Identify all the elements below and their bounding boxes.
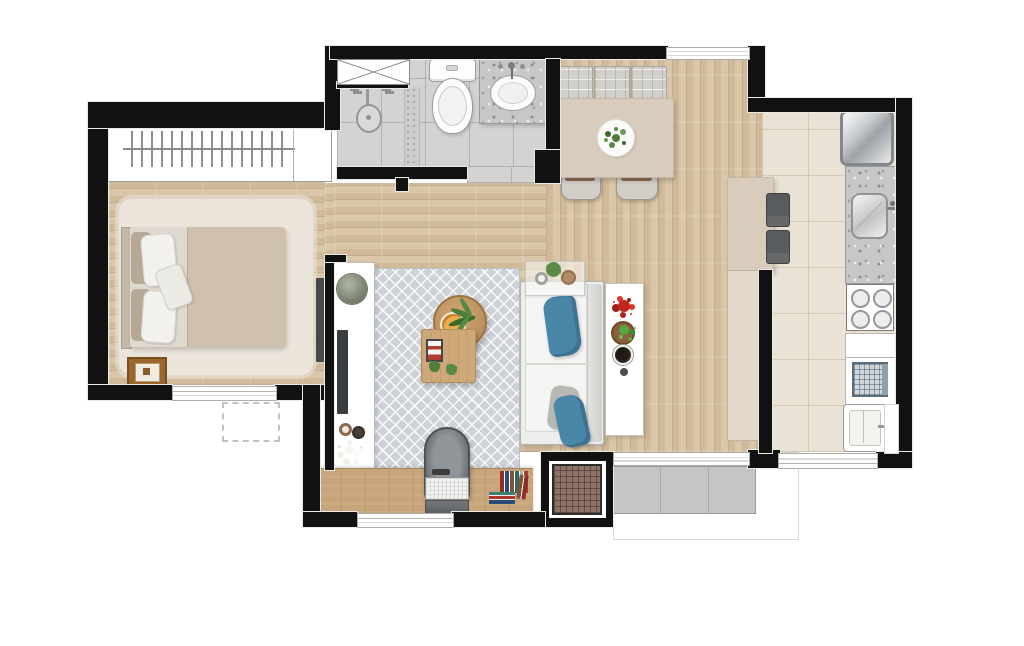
console-cup-2: [352, 426, 365, 439]
vanity: [479, 58, 547, 124]
kitchen-sink: [851, 193, 888, 239]
dining-cushion-1: [557, 66, 593, 101]
shower-head: [356, 104, 382, 133]
red-flowers: [618, 300, 630, 312]
vanity-handle-right: [520, 64, 525, 69]
kitchen-counter-white: [845, 333, 897, 359]
floor-plan: [0, 0, 1024, 646]
kitchen-sink-lines: [857, 199, 882, 233]
vanity-faucet-stem: [511, 68, 513, 79]
bed: [130, 227, 285, 347]
console-white-flowers: [345, 445, 354, 454]
wall-console: [325, 257, 334, 470]
vanity-sink-inner: [498, 82, 528, 104]
wall-bedroom-top: [88, 102, 340, 128]
bedroom-window: [172, 386, 277, 401]
vanity-sink: [490, 75, 536, 111]
laundry-tub-basin: [849, 410, 881, 446]
console-cup-1: [339, 423, 352, 436]
wall-bottom-mid: [452, 512, 545, 527]
wall-bottom-left: [303, 512, 357, 527]
sofa-backrest: [587, 284, 602, 442]
bedroom-tv: [316, 278, 325, 362]
shelf-potted-plant: [611, 321, 635, 345]
washing-machine: [845, 357, 897, 405]
vanity-handle-left: [498, 64, 503, 69]
bar-stool-2: [766, 230, 790, 264]
books-stacked: [489, 492, 515, 504]
wall-console-cap: [325, 255, 346, 262]
kitchen-faucet-base: [890, 201, 895, 206]
wall-divider-stub: [535, 150, 560, 183]
toilet: [428, 58, 476, 134]
wardrobe-hangers: [131, 131, 289, 167]
barbecue-grill-top: [552, 464, 602, 515]
table-plant-1: [429, 361, 440, 372]
wardrobe-divider: [293, 119, 294, 181]
laptop-keyboard: [425, 477, 469, 500]
glass-console-bowl: [535, 272, 548, 285]
shower-divider-strip: [404, 87, 420, 167]
kitchen-window: [778, 453, 878, 469]
dining-cushion-2: [594, 66, 630, 101]
wall-bedroom-left: [88, 102, 108, 400]
console-tv: [337, 330, 348, 414]
glass-console-wood-disc: [561, 270, 576, 285]
toilet-button: [446, 65, 458, 71]
shower-niche: [337, 59, 410, 85]
dining-window: [666, 47, 750, 60]
tray-with-cups: [426, 339, 443, 362]
kitchen-counter-sink: [845, 166, 898, 284]
console-plant: [337, 274, 367, 304]
wall-counter-stub: [759, 270, 772, 453]
wall-bath-dining-top: [330, 46, 668, 59]
nightstand-knob: [143, 368, 150, 375]
refrigerator: [840, 110, 894, 166]
dining-table-plant: [597, 119, 635, 157]
balcony-sliding-door: [613, 452, 750, 466]
toilet-bowl: [432, 78, 473, 134]
wall-bath-door-stub: [396, 178, 408, 191]
shower-valve-left: [350, 88, 359, 91]
wall-bedroom-bottom-left: [88, 385, 172, 400]
kitchen-service-door: [884, 404, 899, 454]
dining-plant-foliage: [612, 134, 620, 142]
bar-cabinet: [727, 270, 761, 441]
toilet-bowl-inner: [438, 86, 467, 126]
bedroom-doorway-floor: [325, 183, 334, 257]
wall-kitchen-top: [748, 98, 912, 112]
cooktop: [846, 284, 894, 331]
shelf-dark-bowl: [613, 345, 633, 365]
wall-kitchen-bottom-right: [876, 452, 912, 468]
bar-stool-1: [766, 193, 790, 227]
ac-unit-dashed-outline: [222, 402, 280, 442]
kitchen-faucet: [887, 207, 896, 210]
washing-machine-panel: [882, 364, 888, 395]
shower-valve-right: [382, 88, 391, 91]
bed-duvet: [187, 227, 286, 347]
table-plant-2: [446, 364, 457, 375]
glass-console-plant: [546, 262, 561, 277]
wall-living-left: [303, 385, 320, 527]
shelf-small-dot: [620, 368, 628, 376]
phone-on-desk: [432, 469, 450, 475]
laundry-tub: [843, 404, 887, 452]
laundry-tub-divider: [863, 411, 864, 443]
dining-cushion-3: [631, 66, 667, 101]
desk-window: [357, 513, 454, 528]
nightstand: [127, 357, 167, 386]
shelf-plant-leaves: [619, 325, 629, 335]
concrete-bench: [613, 466, 756, 514]
